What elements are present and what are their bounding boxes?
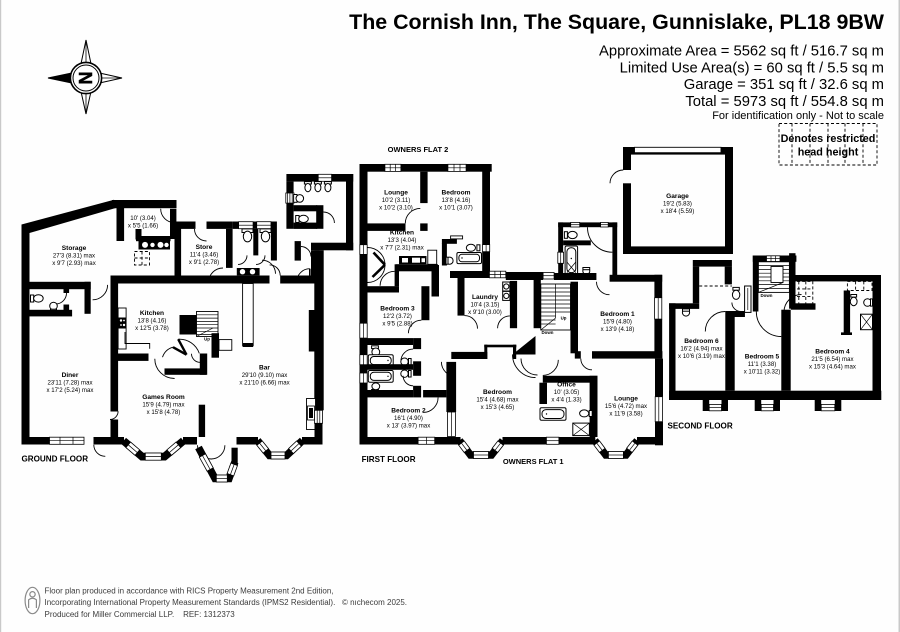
- svg-text:x 15'3 (4.64) max: x 15'3 (4.64) max: [809, 364, 856, 371]
- svg-text:x 4'4 (1.33): x 4'4 (1.33): [551, 397, 581, 404]
- svg-text:Bedroom: Bedroom: [483, 389, 512, 396]
- svg-text:x 12'5 (3.78): x 12'5 (3.78): [135, 325, 169, 332]
- svg-text:15'4 (4.68) max: 15'4 (4.68) max: [476, 397, 518, 404]
- svg-text:Laundry: Laundry: [472, 294, 498, 301]
- svg-text:Bedroom 4: Bedroom 4: [815, 349, 850, 356]
- svg-text:Denotes restricted: Denotes restricted: [781, 133, 876, 145]
- svg-text:Up: Up: [561, 316, 567, 321]
- svg-text:FIRST FLOOR: FIRST FLOOR: [362, 455, 416, 464]
- svg-text:x 10'6 (3.19) max: x 10'6 (3.19) max: [678, 353, 725, 360]
- svg-text:The Cornish Inn, The Square, G: The Cornish Inn, The Square, Gunnislake,…: [349, 10, 885, 34]
- svg-text:x 15'8 (4.78): x 15'8 (4.78): [147, 409, 181, 416]
- svg-text:Total = 5973 sq ft / 554.8 sq: Total = 5973 sq ft / 554.8 sq m: [685, 94, 884, 110]
- svg-text:Lounge: Lounge: [614, 396, 638, 403]
- svg-text:15'9 (4.79) max: 15'9 (4.79) max: [142, 402, 184, 409]
- svg-text:Office: Office: [557, 382, 576, 389]
- svg-text:x 10'11 (3.32): x 10'11 (3.32): [744, 369, 781, 376]
- svg-text:Garage = 351 sq ft / 32.6 sq m: Garage = 351 sq ft / 32.6 sq m: [684, 77, 884, 93]
- svg-text:10' (3.04): 10' (3.04): [130, 215, 156, 222]
- svg-text:Garage: Garage: [666, 193, 689, 200]
- svg-text:Bedroom 2: Bedroom 2: [391, 408, 426, 415]
- svg-text:11'1 (3.38): 11'1 (3.38): [748, 361, 777, 368]
- svg-text:12'2 (3.72): 12'2 (3.72): [383, 313, 412, 320]
- svg-text:x 10'2 (3.10): x 10'2 (3.10): [379, 205, 413, 212]
- svg-text:Diner: Diner: [62, 372, 79, 379]
- svg-text:For identification only - Not: For identification only - Not to scale: [712, 110, 884, 122]
- svg-text:Kitchen: Kitchen: [390, 230, 414, 237]
- svg-text:Approximate Area = 5562 sq ft: Approximate Area = 5562 sq ft / 516.7 sq…: [599, 44, 884, 60]
- svg-text:x 9'10 (3.00): x 9'10 (3.00): [468, 309, 502, 316]
- svg-text:x 5'5 (1.66): x 5'5 (1.66): [128, 223, 158, 230]
- svg-text:Down: Down: [542, 330, 554, 335]
- svg-text:16'2 (4.94) max: 16'2 (4.94) max: [680, 346, 722, 353]
- svg-text:15'6 (4.72) max: 15'6 (4.72) max: [605, 403, 647, 410]
- svg-text:15'9 (4.80): 15'9 (4.80): [603, 319, 632, 326]
- svg-text:x 10'1 (3.07): x 10'1 (3.07): [439, 205, 473, 212]
- svg-text:Bedroom: Bedroom: [442, 190, 471, 197]
- svg-text:x 11'9 (3.58): x 11'9 (3.58): [609, 411, 642, 418]
- svg-text:OWNERS FLAT 1: OWNERS FLAT 1: [503, 457, 564, 466]
- svg-text:Down: Down: [761, 293, 773, 298]
- svg-text:10'4 (3.15): 10'4 (3.15): [471, 302, 500, 309]
- svg-text:27'3 (8.31) max: 27'3 (8.31) max: [53, 253, 95, 260]
- svg-text:Produced for Miller Commercial: Produced for Miller Commercial LLP. REF:…: [45, 610, 236, 619]
- svg-text:Bar: Bar: [259, 365, 270, 372]
- svg-text:x 9'7 (2.93) max: x 9'7 (2.93) max: [52, 260, 96, 267]
- svg-text:13'8 (4.16): 13'8 (4.16): [442, 197, 471, 204]
- svg-text:N: N: [76, 72, 96, 85]
- svg-text:10'2 (3.11): 10'2 (3.11): [382, 197, 411, 204]
- svg-text:13'3 (4.04): 13'3 (4.04): [388, 237, 417, 244]
- svg-text:x 17'2 (5.24) max: x 17'2 (5.24) max: [47, 387, 94, 394]
- svg-text:x 13'9 (4.18): x 13'9 (4.18): [601, 326, 635, 333]
- svg-text:x 9'5 (2.88): x 9'5 (2.88): [382, 321, 412, 328]
- svg-text:Games Room: Games Room: [142, 394, 185, 401]
- svg-text:10' (3.05): 10' (3.05): [554, 389, 580, 396]
- svg-text:x 21'10 (6.66) max: x 21'10 (6.66) max: [239, 380, 289, 387]
- svg-text:Bedroom 5: Bedroom 5: [745, 354, 780, 361]
- svg-text:x 9'1 (2.78): x 9'1 (2.78): [189, 259, 219, 266]
- svg-text:x 7'7 (2.31) max: x 7'7 (2.31) max: [380, 245, 424, 252]
- svg-text:Floor plan produced in accorda: Floor plan produced in accordance with R…: [45, 587, 334, 596]
- svg-text:Bedroom 1: Bedroom 1: [600, 311, 635, 318]
- svg-text:29'10 (9.10) max: 29'10 (9.10) max: [242, 372, 288, 379]
- svg-text:Bedroom 6: Bedroom 6: [684, 338, 719, 345]
- svg-text:11'4 (3.46): 11'4 (3.46): [190, 252, 219, 259]
- svg-text:OWNERS FLAT 2: OWNERS FLAT 2: [388, 145, 449, 154]
- svg-text:Kitchen: Kitchen: [140, 310, 164, 317]
- svg-text:Lounge: Lounge: [384, 190, 408, 197]
- svg-text:x 13' (3.97) max: x 13' (3.97) max: [387, 423, 431, 430]
- svg-text:Bedroom 3: Bedroom 3: [380, 306, 415, 313]
- svg-text:Store: Store: [196, 244, 213, 251]
- svg-text:19'2 (5.83): 19'2 (5.83): [663, 201, 692, 208]
- svg-text:23'11 (7.28) max: 23'11 (7.28) max: [47, 380, 92, 387]
- svg-text:Limited Use Area(s) = 60 sq ft: Limited Use Area(s) = 60 sq ft / 5.5 sq …: [620, 60, 884, 76]
- svg-text:Storage: Storage: [62, 245, 87, 252]
- svg-text:16'1 (4.90): 16'1 (4.90): [394, 415, 423, 422]
- svg-text:GROUND FLOOR: GROUND FLOOR: [22, 455, 89, 464]
- svg-text:x 15'3 (4.65): x 15'3 (4.65): [481, 404, 515, 411]
- svg-text:SECOND FLOOR: SECOND FLOOR: [668, 422, 733, 431]
- svg-text:Up: Up: [204, 337, 210, 342]
- svg-text:head height: head height: [798, 147, 859, 159]
- svg-text:x 18'4 (5.59): x 18'4 (5.59): [661, 208, 695, 215]
- svg-text:21'5 (6.54) max: 21'5 (6.54) max: [811, 356, 853, 363]
- svg-text:13'8 (4.16): 13'8 (4.16): [138, 318, 167, 325]
- svg-text:Incorporating International Pr: Incorporating International Property Mea…: [45, 598, 408, 607]
